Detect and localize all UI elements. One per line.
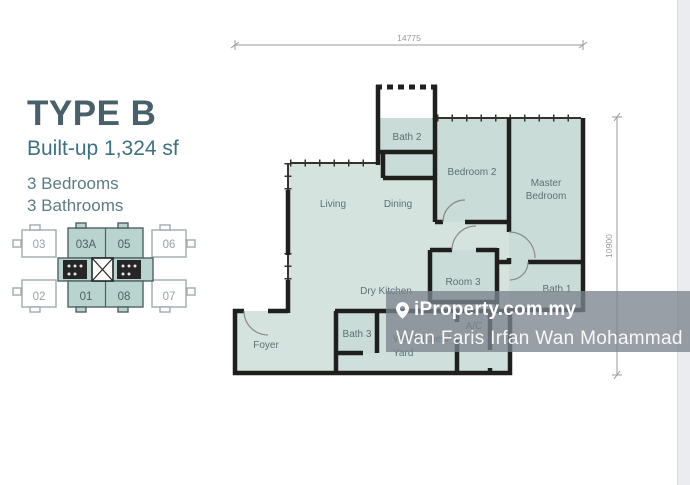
room-label-foyer: Foyer bbox=[253, 340, 279, 351]
room-label-living: Living bbox=[320, 199, 346, 210]
builtup-size: Built-up 1,324 sf bbox=[27, 136, 227, 162]
room-label-bedroom2: Bedroom 2 bbox=[448, 167, 497, 178]
watermark-agent: Wan Faris Irfan Wan Mohammad bbox=[396, 328, 690, 350]
dimension-top-label: 14775 bbox=[397, 33, 421, 43]
dimension-right-label: 10900 bbox=[604, 234, 614, 258]
keyplan-unit-label: 07 bbox=[163, 291, 176, 303]
keyplan-unit-label: 02 bbox=[33, 291, 46, 303]
keyplan-unit-label: 03A bbox=[76, 239, 97, 251]
room-label-master-line2: Bedroom bbox=[526, 191, 567, 202]
keyplan-core bbox=[63, 258, 141, 281]
room-label-bath3: Bath 3 bbox=[343, 329, 372, 340]
room-label-master-line1: Master bbox=[531, 178, 562, 189]
floorplan-page: { "panel": { "title": "TYPE B", "builtup… bbox=[0, 0, 690, 485]
keyplan-unit-label: 01 bbox=[80, 291, 93, 303]
keyplan-unit-label: 08 bbox=[118, 291, 131, 303]
watermark-banner: iProperty.com.my Wan Faris Irfan Wan Moh… bbox=[386, 291, 690, 352]
right-edge-strip bbox=[677, 0, 690, 485]
room-label-bath2: Bath 2 bbox=[393, 132, 422, 143]
bedrooms-count: 3 Bedrooms bbox=[27, 173, 227, 195]
keyplan-unit-label: 03 bbox=[33, 239, 46, 251]
room-label-room3: Room 3 bbox=[445, 277, 480, 288]
spec-panel: TYPE B Built-up 1,324 sf 3 Bedrooms 3 Ba… bbox=[27, 95, 227, 216]
watermark-brand: iProperty.com.my bbox=[414, 299, 576, 321]
unit-type-title: TYPE B bbox=[27, 95, 227, 133]
bathrooms-count: 3 Bathrooms bbox=[27, 195, 227, 217]
service-shaft bbox=[378, 85, 435, 118]
location-pin-icon bbox=[396, 302, 409, 319]
keyplan-unit-label: 06 bbox=[163, 239, 176, 251]
key-plan: 03 03A 05 06 02 01 08 07 bbox=[5, 222, 200, 322]
keyplan-unit-label: 05 bbox=[118, 239, 131, 251]
room-label-dining: Dining bbox=[384, 199, 412, 210]
